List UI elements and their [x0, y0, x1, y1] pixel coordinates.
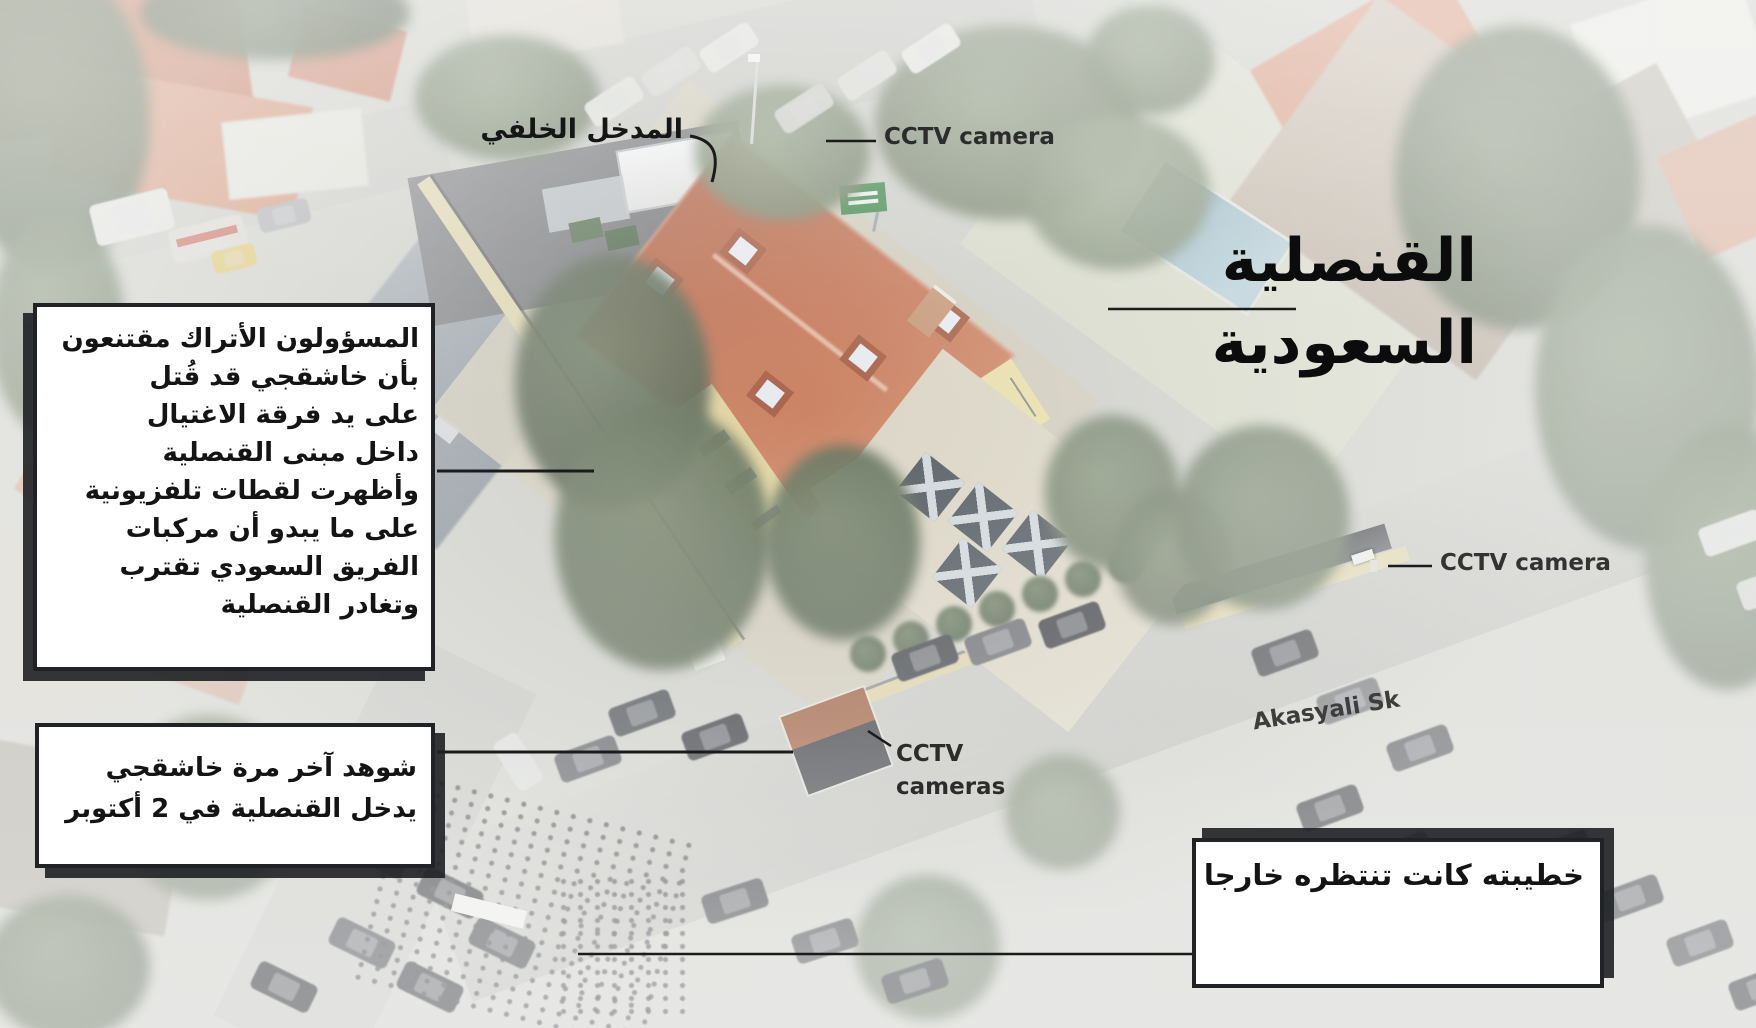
- cctv-gate-line-2: cameras: [896, 771, 1005, 804]
- hedge: [1022, 576, 1058, 612]
- text-line: على ما يبدو أن مركبات: [45, 510, 419, 548]
- text-line: وأظهرت لقطات تلفزيونية: [45, 472, 419, 510]
- text-line: بأن خاشقجي قد قُتل: [45, 358, 419, 396]
- tree: [1175, 425, 1350, 610]
- car: [553, 734, 623, 784]
- page-title: القنصلية السعودية: [1212, 220, 1477, 384]
- car: [1295, 783, 1365, 833]
- cctv-gate-line-1: CCTV: [896, 738, 1005, 771]
- text-line: على يد فرقة الاغتيال: [45, 396, 419, 434]
- back-entrance-label: المدخل الخلفي: [480, 114, 683, 145]
- text-line: شوهد آخر مرة خاشقجي: [47, 748, 417, 789]
- car: [1727, 962, 1756, 1012]
- text-line: يدخل القنصلية في 2 أكتوبر: [47, 789, 417, 830]
- tree: [855, 875, 1000, 1020]
- car: [607, 688, 677, 738]
- tree: [555, 405, 770, 670]
- text-line: خطيبته كانت تنتظره خارجا: [1204, 854, 1584, 896]
- infographic: المدخل الخلفي CCTV camera القنصلية السعو…: [0, 0, 1756, 1028]
- info-box-fiancee: خطيبته كانت تنتظره خارجا: [1192, 838, 1604, 988]
- title-line-2: السعودية: [1212, 302, 1477, 384]
- tree: [765, 445, 920, 640]
- text-line: داخل مبنى القنصلية: [45, 434, 419, 472]
- hedge: [850, 636, 886, 672]
- cctv-camera-mount: [1370, 560, 1377, 572]
- text-line: المسؤولون الأتراك مقتنعون: [45, 320, 419, 358]
- building: [221, 108, 368, 200]
- cctv-camera-icon: [748, 54, 760, 62]
- cctv-cameras-gate-label: CCTV cameras: [896, 738, 1005, 804]
- text-line: الفريق السعودي تقترب: [45, 548, 419, 586]
- info-box-officials: المسؤولون الأتراك مقتنعون بأن خاشقجي قد …: [33, 303, 435, 671]
- title-line-1: القنصلية: [1212, 220, 1477, 302]
- text-line: وتغادر القنصلية: [45, 586, 419, 624]
- tree: [1085, 5, 1215, 115]
- cctv-camera-right-label: CCTV camera: [1440, 550, 1611, 576]
- tree: [1005, 755, 1120, 870]
- info-box-last-seen: شوهد آخر مرة خاشقجي يدخل القنصلية في 2 أ…: [35, 723, 435, 868]
- car: [1665, 918, 1735, 968]
- box-text: شوهد آخر مرة خاشقجي يدخل القنصلية في 2 أ…: [39, 727, 431, 830]
- car: [790, 917, 860, 965]
- crowd: [555, 875, 685, 1015]
- cctv-camera-top-label: CCTV camera: [884, 124, 1055, 150]
- box-text: خطيبته كانت تنتظره خارجا: [1196, 842, 1600, 896]
- box-text: المسؤولون الأتراك مقتنعون بأن خاشقجي قد …: [37, 307, 431, 624]
- car: [1385, 723, 1455, 773]
- car: [1595, 873, 1665, 923]
